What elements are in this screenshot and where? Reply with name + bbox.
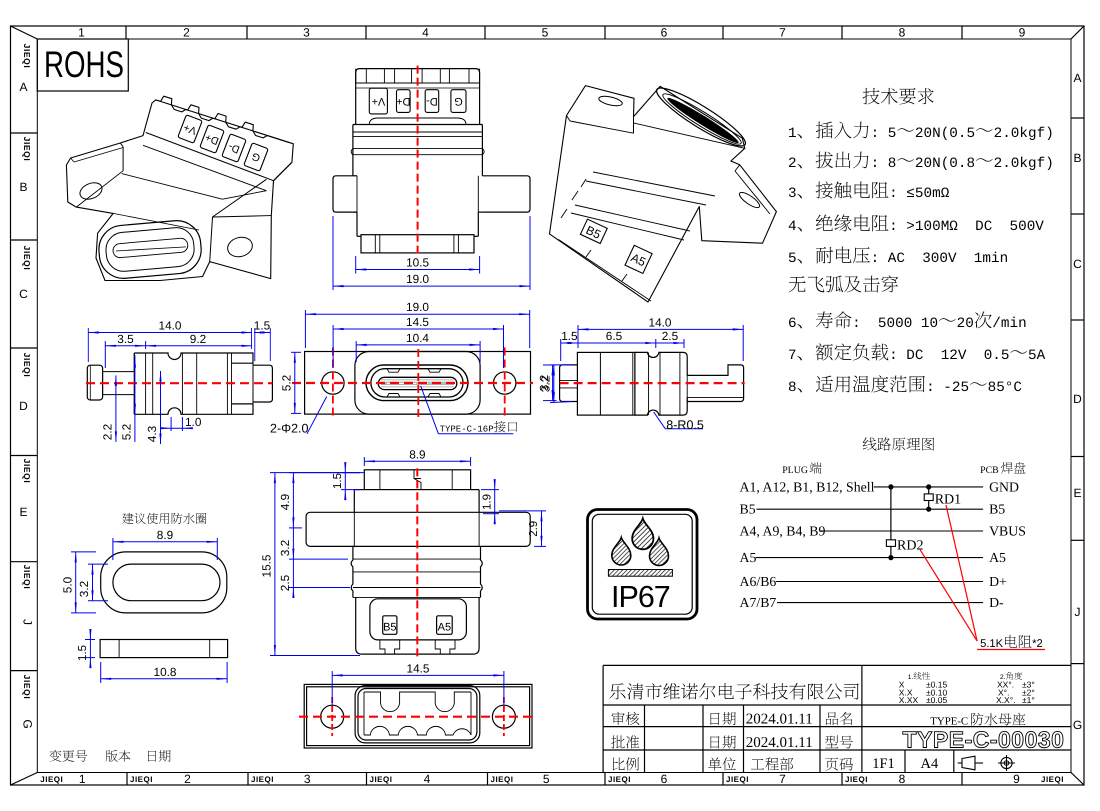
svg-text:10.5: 10.5	[406, 256, 429, 270]
svg-text:7: 7	[788, 348, 797, 364]
svg-text:D-: D-	[989, 595, 1004, 610]
svg-text:19.0: 19.0	[406, 300, 429, 314]
svg-text:JIEQI: JIEQI	[130, 775, 153, 784]
svg-text:A5: A5	[438, 622, 451, 634]
svg-text:: 5: : 5	[871, 126, 897, 142]
svg-text:20N(0.8: 20N(0.8	[915, 156, 975, 172]
svg-text:2.0kgf): 2.0kgf)	[994, 156, 1054, 172]
svg-text:9.2: 9.2	[190, 332, 206, 346]
svg-text:5.2: 5.2	[120, 424, 134, 440]
svg-text:19.0: 19.0	[406, 272, 429, 286]
svg-text:A6/B6: A6/B6	[740, 574, 777, 589]
svg-text:: ≤50mΩ: : ≤50mΩ	[889, 186, 950, 202]
svg-text:20N(0.5: 20N(0.5	[915, 126, 975, 142]
svg-text:3: 3	[303, 26, 310, 40]
svg-text:6: 6	[661, 772, 668, 786]
svg-text:4.9: 4.9	[278, 494, 292, 510]
svg-text:IP67: IP67	[611, 580, 670, 614]
svg-text:B5: B5	[740, 502, 756, 517]
svg-text:2: 2	[183, 26, 190, 40]
svg-text:A5: A5	[740, 550, 757, 565]
svg-text:9: 9	[1019, 26, 1026, 40]
svg-text:5.2: 5.2	[280, 375, 294, 391]
svg-text:D: D	[1073, 392, 1082, 406]
svg-text:5: 5	[788, 251, 797, 267]
svg-text:6.5: 6.5	[606, 329, 623, 343]
svg-text:JIEQI: JIEQI	[22, 137, 32, 162]
svg-text:A4, A9, B4, B9: A4, A9, B4, B9	[740, 524, 826, 539]
svg-text:B: B	[19, 180, 27, 194]
svg-text:3.5: 3.5	[117, 332, 134, 346]
svg-text:JIEQI: JIEQI	[40, 775, 63, 784]
svg-text:±0.05: ±0.05	[926, 695, 947, 705]
svg-text:J: J	[21, 619, 35, 625]
svg-text:3.2: 3.2	[278, 540, 292, 556]
svg-text:E: E	[1073, 486, 1081, 500]
svg-text:B5: B5	[989, 502, 1005, 517]
svg-text:2024.01.11: 2024.01.11	[746, 712, 813, 728]
svg-text:2-Φ2.0: 2-Φ2.0	[270, 422, 309, 436]
svg-text:1: 1	[788, 126, 797, 142]
svg-text:5.1K: 5.1K	[980, 638, 1004, 650]
svg-text:14.0: 14.0	[649, 315, 672, 329]
svg-text:1: 1	[79, 772, 86, 786]
svg-text:JIEQI: JIEQI	[845, 775, 868, 784]
svg-text:14.5: 14.5	[407, 662, 430, 676]
svg-text:6: 6	[661, 26, 668, 40]
svg-text:J: J	[1075, 605, 1081, 619]
svg-text:PCB: PCB	[980, 465, 999, 476]
svg-text:X.X°.: X.X°.	[996, 695, 1015, 705]
svg-text:8.9: 8.9	[409, 447, 425, 461]
svg-text:D+: D+	[989, 574, 1007, 589]
svg-text:3.2: 3.2	[538, 376, 552, 392]
svg-text:D-: D-	[426, 95, 438, 107]
svg-text:A1, A12, B1, B12, Shell: A1, A12, B1, B12, Shell	[740, 479, 875, 494]
svg-text:: 8: : 8	[871, 156, 897, 172]
svg-text:A: A	[19, 80, 27, 94]
svg-text:A4: A4	[921, 756, 939, 772]
svg-text:2.0kgf): 2.0kgf)	[994, 126, 1054, 142]
svg-text:VBUS: VBUS	[989, 524, 1026, 539]
svg-text:C: C	[1073, 257, 1082, 271]
svg-text:JIEQI: JIEQI	[22, 44, 32, 69]
svg-text:4: 4	[422, 26, 429, 40]
svg-text:8.9: 8.9	[157, 528, 173, 542]
svg-text:8-R0.5: 8-R0.5	[666, 418, 704, 432]
svg-text:6: 6	[788, 316, 797, 332]
svg-text:2.5: 2.5	[662, 329, 679, 343]
svg-text:10.8: 10.8	[154, 665, 177, 679]
svg-text:2: 2	[184, 772, 191, 786]
svg-text:JIEQI: JIEQI	[22, 565, 32, 590]
svg-text:8: 8	[899, 26, 906, 40]
svg-text:JIEQI: JIEQI	[491, 775, 514, 784]
svg-text:2.5: 2.5	[278, 574, 292, 591]
svg-text:C: C	[19, 287, 28, 301]
svg-text:2024.01.11: 2024.01.11	[746, 735, 813, 751]
svg-text:D: D	[19, 399, 28, 413]
svg-text:G: G	[454, 95, 463, 107]
svg-text:A: A	[1073, 71, 1081, 85]
svg-text:4: 4	[424, 772, 431, 786]
svg-text:1.5: 1.5	[332, 473, 344, 489]
svg-text:8: 8	[788, 380, 797, 396]
svg-text:TYPE-C-16P: TYPE-C-16P	[440, 424, 494, 434]
svg-text:7: 7	[779, 772, 786, 786]
svg-text:15.5: 15.5	[260, 554, 274, 577]
svg-text:: -25: : -25	[926, 380, 969, 396]
svg-text:G: G	[21, 719, 35, 728]
svg-text:1.9: 1.9	[481, 494, 493, 510]
svg-text:3: 3	[788, 186, 797, 202]
svg-text:8: 8	[899, 772, 906, 786]
svg-text:/min: /min	[992, 316, 1026, 332]
svg-text:5A: 5A	[1028, 348, 1046, 364]
svg-text:7: 7	[779, 26, 786, 40]
svg-text:1.: 1.	[908, 674, 914, 681]
svg-text:JIEQI: JIEQI	[608, 775, 631, 784]
svg-text:5: 5	[542, 26, 549, 40]
svg-text:JIEQI: JIEQI	[22, 675, 32, 700]
svg-text:1.5: 1.5	[561, 329, 578, 343]
svg-text:3: 3	[304, 772, 311, 786]
svg-text:*2: *2	[1032, 638, 1043, 650]
svg-text:14.5: 14.5	[406, 315, 429, 329]
svg-text:9: 9	[1013, 772, 1020, 786]
svg-text:JIEQI: JIEQI	[22, 246, 32, 271]
svg-text:3.2: 3.2	[77, 581, 91, 597]
svg-text:2.9: 2.9	[528, 521, 540, 537]
svg-text:: >100MΩ DC 500V: : >100MΩ DC 500V	[889, 219, 1044, 235]
svg-text:TYPE-C-00030: TYPE-C-00030	[903, 727, 1065, 753]
svg-text:4: 4	[788, 219, 797, 235]
svg-text:5: 5	[543, 772, 550, 786]
svg-text:2.2: 2.2	[101, 424, 115, 440]
svg-text:: DC 12V 0.5: : DC 12V 0.5	[889, 348, 1009, 364]
svg-text:B: B	[1073, 151, 1081, 165]
svg-text:V+: V+	[372, 95, 386, 107]
svg-text:RD2: RD2	[897, 539, 923, 554]
svg-text:10.4: 10.4	[406, 331, 429, 345]
svg-text:X.XX: X.XX	[899, 695, 919, 705]
svg-text:JIEQI: JIEQI	[251, 775, 274, 784]
svg-text:1: 1	[78, 26, 85, 40]
svg-text:4.3: 4.3	[145, 425, 159, 442]
svg-text:: AC 300V 1min: : AC 300V 1min	[871, 251, 1009, 267]
svg-text:1.5: 1.5	[254, 319, 271, 333]
svg-text:JIEQI: JIEQI	[726, 775, 749, 784]
svg-text:20: 20	[957, 316, 974, 332]
svg-text:A7/B7: A7/B7	[740, 595, 777, 610]
svg-text:PLUG: PLUG	[782, 465, 808, 476]
svg-text:1.5: 1.5	[77, 645, 89, 661]
svg-text:JIEQI: JIEQI	[22, 353, 32, 378]
svg-text:: 5000 10: : 5000 10	[852, 316, 938, 332]
svg-text:1F1: 1F1	[872, 756, 895, 772]
svg-text:5.0: 5.0	[60, 576, 74, 593]
svg-text:RD1: RD1	[935, 493, 961, 508]
svg-text:G: G	[1073, 718, 1082, 732]
svg-text:GND: GND	[989, 479, 1019, 494]
svg-text:14.0: 14.0	[159, 319, 182, 333]
svg-text:JIEQI: JIEQI	[1041, 775, 1064, 784]
svg-text:±1°: ±1°	[1022, 695, 1035, 705]
svg-text:85°C: 85°C	[988, 380, 1022, 396]
svg-text:D+: D+	[396, 95, 410, 107]
svg-text:B5: B5	[383, 622, 396, 634]
svg-text:ROHS: ROHS	[44, 44, 124, 85]
svg-text:2: 2	[788, 156, 797, 172]
svg-text:JIEQI: JIEQI	[370, 775, 393, 784]
svg-text:1.0: 1.0	[185, 415, 202, 429]
svg-text:JIEQI: JIEQI	[22, 459, 32, 484]
svg-text:E: E	[19, 505, 27, 519]
svg-text:A5: A5	[989, 550, 1006, 565]
